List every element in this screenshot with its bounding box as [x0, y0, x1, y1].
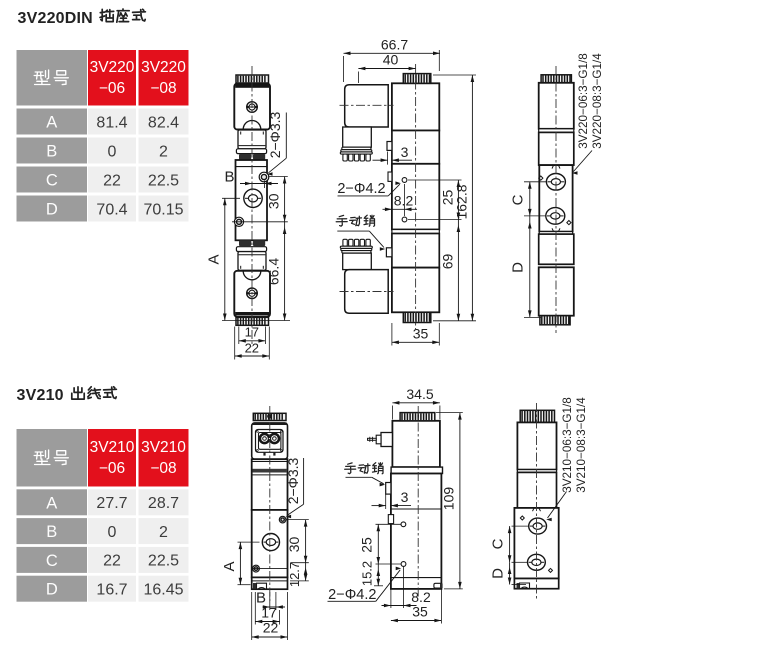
svg-text:8.2: 8.2 [394, 193, 414, 209]
svg-text:28.7: 28.7 [148, 495, 179, 512]
svg-text:B: B [224, 169, 234, 186]
svg-text:30: 30 [286, 537, 302, 553]
svg-text:3V220−08:3−G1/4: 3V220−08:3−G1/4 [591, 53, 604, 149]
svg-text:35: 35 [413, 325, 429, 341]
svg-text:D: D [510, 262, 527, 273]
svg-text:16.45: 16.45 [143, 582, 183, 599]
svg-text:−08: −08 [150, 460, 176, 477]
svg-text:−06: −06 [99, 80, 125, 97]
svg-text:2−Φ3.3: 2−Φ3.3 [267, 111, 283, 158]
svg-text:3V220DIN: 3V220DIN [18, 10, 93, 27]
svg-text:40: 40 [383, 52, 399, 68]
svg-text:B: B [46, 143, 57, 161]
svg-text:66.7: 66.7 [381, 36, 408, 52]
svg-text:66.4: 66.4 [266, 258, 282, 285]
svg-text:A: A [205, 254, 222, 264]
svg-text:0: 0 [108, 143, 117, 160]
svg-text:B: B [46, 523, 57, 541]
svg-text:3V210: 3V210 [141, 439, 186, 456]
svg-text:2−Φ3.3: 2−Φ3.3 [285, 457, 301, 504]
svg-text:162.8: 162.8 [453, 184, 469, 219]
svg-text:2: 2 [159, 524, 168, 541]
svg-text:81.4: 81.4 [96, 114, 127, 131]
svg-text:25: 25 [439, 190, 455, 206]
svg-text:3V210: 3V210 [17, 387, 64, 404]
svg-text:3V220−06:3−G1/8: 3V220−06:3−G1/8 [577, 53, 590, 149]
svg-text:A: A [46, 114, 57, 132]
svg-text:0: 0 [108, 524, 117, 541]
svg-text:22: 22 [103, 553, 121, 570]
svg-text:70.15: 70.15 [143, 201, 183, 218]
svg-text:22: 22 [103, 172, 121, 189]
svg-text:82.4: 82.4 [148, 114, 179, 131]
svg-text:22: 22 [263, 620, 279, 636]
svg-text:27.7: 27.7 [96, 495, 127, 512]
svg-text:C: C [510, 194, 527, 205]
svg-text:2−Φ4.2: 2−Φ4.2 [337, 181, 385, 197]
svg-text:−08: −08 [150, 80, 176, 97]
svg-text:70.4: 70.4 [96, 201, 127, 218]
svg-text:25: 25 [358, 537, 374, 553]
svg-text:D: D [46, 581, 58, 599]
svg-text:15.2: 15.2 [359, 561, 374, 586]
svg-text:3: 3 [401, 144, 409, 160]
svg-text:A: A [221, 561, 238, 571]
svg-text:2−Φ4.2: 2−Φ4.2 [328, 587, 376, 603]
svg-text:16.7: 16.7 [96, 582, 127, 599]
svg-text:D: D [46, 201, 58, 219]
svg-text:22.5: 22.5 [148, 553, 179, 570]
svg-text:109: 109 [441, 487, 457, 511]
svg-text:D: D [490, 568, 507, 579]
svg-text:−06: −06 [99, 460, 125, 477]
svg-text:22.5: 22.5 [148, 172, 179, 189]
svg-text:3V210−06:3−G1/8: 3V210−06:3−G1/8 [561, 397, 574, 493]
svg-text:2: 2 [159, 143, 168, 160]
svg-text:3V220: 3V220 [141, 59, 186, 76]
svg-text:3V210−08:3−G1/4: 3V210−08:3−G1/4 [575, 397, 588, 493]
svg-text:34.5: 34.5 [406, 386, 433, 402]
svg-text:A: A [46, 494, 57, 512]
svg-text:12.7: 12.7 [287, 562, 302, 587]
svg-text:3: 3 [401, 489, 409, 505]
svg-text:35: 35 [412, 604, 428, 620]
svg-text:C: C [46, 172, 58, 190]
svg-text:C: C [490, 538, 507, 549]
svg-text:17: 17 [261, 605, 277, 621]
svg-text:3V220: 3V220 [90, 59, 135, 76]
svg-text:30: 30 [266, 193, 282, 209]
svg-text:3V210: 3V210 [90, 439, 135, 456]
svg-text:C: C [46, 552, 58, 570]
svg-text:69: 69 [439, 254, 455, 270]
